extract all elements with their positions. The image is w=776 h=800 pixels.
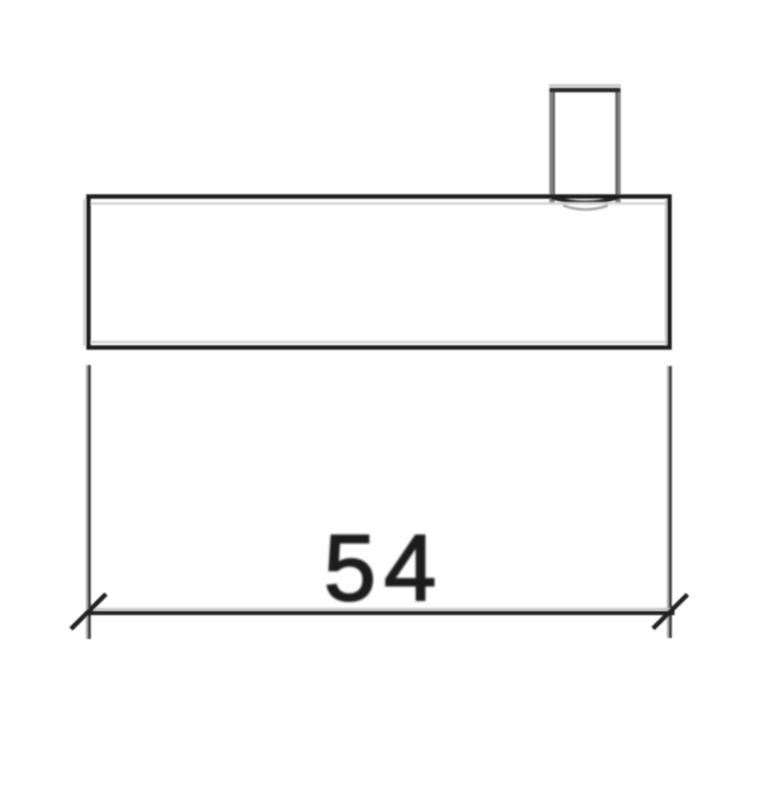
svg-text:54: 54 (324, 515, 445, 620)
